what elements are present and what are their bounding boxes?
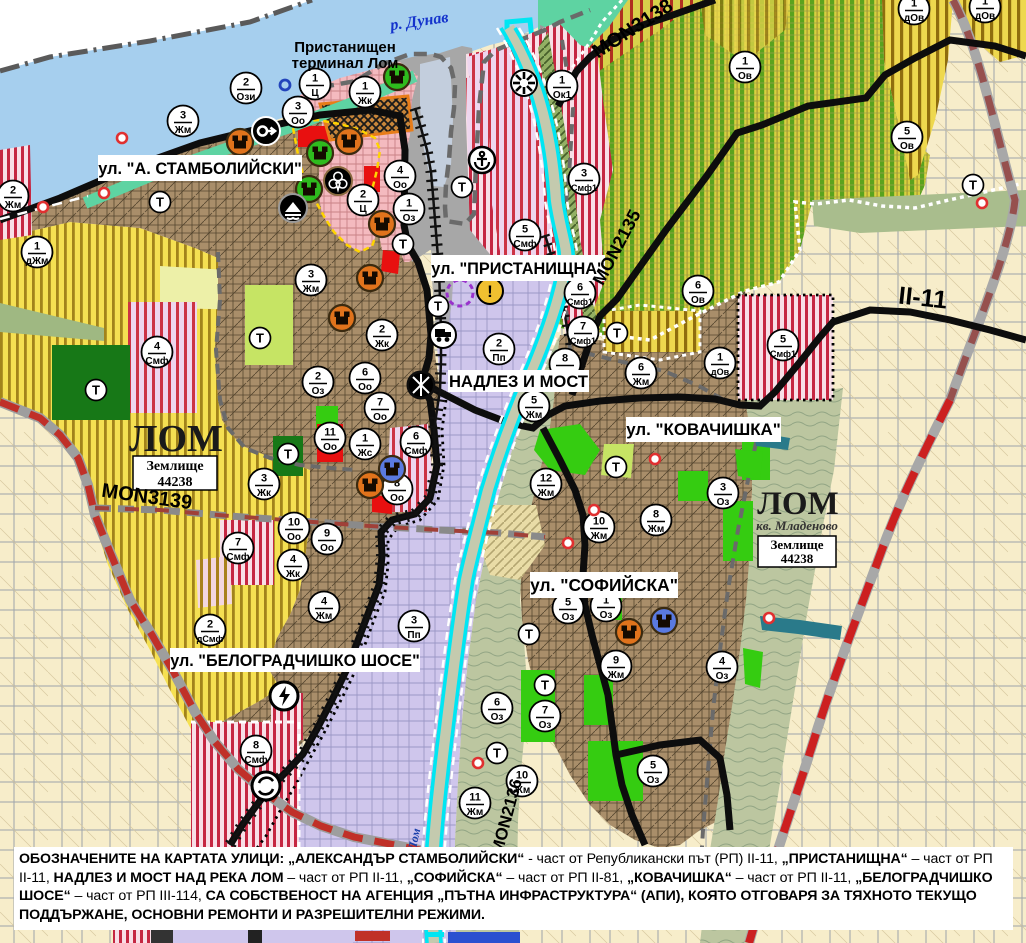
svg-text:4: 4	[154, 341, 161, 353]
svg-text:44238: 44238	[781, 551, 814, 566]
svg-text:Смф1: Смф1	[570, 336, 596, 346]
svg-text:Жс: Жс	[357, 448, 373, 459]
svg-text:2: 2	[360, 189, 366, 201]
svg-text:!: !	[487, 282, 493, 301]
svg-text:5: 5	[565, 597, 571, 609]
svg-text:1: 1	[406, 198, 412, 210]
svg-text:Землище: Землище	[770, 537, 823, 552]
svg-text:8: 8	[562, 353, 568, 365]
svg-text:Жм: Жм	[590, 531, 607, 542]
svg-text:Смф: Смф	[404, 445, 427, 457]
svg-text:Смф1: Смф1	[770, 349, 796, 359]
svg-text:Жм: Жм	[537, 488, 554, 499]
svg-text:Жк: Жк	[374, 339, 390, 350]
svg-text:8: 8	[253, 740, 259, 752]
svg-text:Оо: Оо	[320, 543, 334, 554]
svg-text:Жм: Жм	[607, 670, 624, 681]
svg-text:4: 4	[397, 165, 404, 177]
svg-text:Смф1: Смф1	[567, 297, 593, 307]
svg-text:10: 10	[593, 516, 605, 528]
svg-text:1: 1	[982, 0, 988, 8]
svg-text:5: 5	[522, 224, 528, 236]
svg-text:Т: Т	[969, 178, 977, 193]
svg-text:Пп: Пп	[492, 353, 505, 364]
svg-text:ул. "ПРИСТАНИЩНА": ул. "ПРИСТАНИЩНА"	[431, 260, 605, 278]
svg-text:2: 2	[315, 371, 321, 383]
svg-text:11: 11	[324, 427, 336, 439]
svg-text:Оо: Оо	[390, 493, 404, 504]
svg-text:Т: Т	[525, 627, 533, 642]
svg-text:5: 5	[780, 334, 786, 346]
svg-text:Т: Т	[92, 383, 100, 398]
svg-text:Смф: Смф	[513, 238, 536, 250]
svg-text:2: 2	[379, 324, 385, 336]
svg-text:Т: Т	[156, 195, 164, 210]
svg-text:Жм: Жм	[647, 524, 664, 535]
svg-text:Оо: Оо	[291, 116, 305, 127]
svg-text:Ози: Ози	[237, 92, 256, 103]
svg-text:ул. "БЕЛОГРАДЧИШКО ШОСЕ": ул. "БЕЛОГРАДЧИШКО ШОСЕ"	[170, 652, 420, 670]
svg-text:3: 3	[295, 101, 301, 113]
svg-text:5: 5	[650, 760, 656, 772]
svg-text:9: 9	[613, 655, 619, 667]
svg-text:5: 5	[904, 126, 910, 138]
svg-text:Ов: Ов	[738, 71, 752, 82]
svg-text:Оз: Оз	[647, 775, 660, 786]
svg-text:Оо: Оо	[287, 532, 301, 543]
svg-text:1: 1	[742, 56, 748, 68]
svg-text:Т: Т	[399, 237, 407, 252]
svg-text:Смф: Смф	[244, 754, 267, 766]
svg-text:Смф1: Смф1	[571, 183, 597, 193]
svg-text:6: 6	[638, 362, 644, 374]
svg-text:2: 2	[207, 619, 213, 631]
svg-text:7: 7	[580, 321, 586, 333]
svg-text:Оо: Оо	[323, 442, 337, 453]
svg-text:Т: Т	[256, 331, 264, 346]
svg-text:НАДЛЕЗ И МОСТ: НАДЛЕЗ И МОСТ	[449, 372, 588, 391]
svg-text:дОв: дОв	[904, 13, 924, 24]
svg-text:4: 4	[321, 596, 328, 608]
svg-text:Жм: Жм	[466, 807, 483, 818]
svg-text:6: 6	[494, 697, 500, 709]
svg-text:2: 2	[243, 77, 249, 89]
svg-text:12: 12	[540, 473, 552, 485]
svg-text:3: 3	[180, 110, 186, 122]
svg-text:Жм: Жм	[315, 611, 332, 622]
svg-text:3: 3	[581, 168, 587, 180]
svg-text:Т: Т	[458, 180, 466, 195]
svg-text:Оз: Оз	[717, 497, 730, 508]
svg-text:Жм: Жм	[525, 410, 542, 421]
svg-text:Т: Т	[613, 326, 621, 341]
svg-text:Жк: Жк	[357, 96, 373, 107]
svg-text:Т: Т	[434, 299, 442, 314]
svg-text:11: 11	[469, 792, 481, 804]
svg-text:3: 3	[261, 473, 267, 485]
svg-text:Т: Т	[284, 447, 292, 462]
svg-text:Жк: Жк	[256, 488, 272, 499]
svg-text:6: 6	[695, 280, 701, 292]
svg-text:Ов: Ов	[900, 141, 914, 152]
svg-text:7: 7	[542, 705, 548, 717]
svg-text:ЛОМ: ЛОМ	[129, 418, 223, 460]
svg-text:8: 8	[653, 509, 659, 521]
svg-text:Оз: Оз	[600, 610, 613, 621]
svg-text:кв. Младеново: кв. Младеново	[756, 518, 838, 533]
svg-text:дЖм: дЖм	[26, 256, 49, 267]
svg-text:6: 6	[577, 282, 583, 294]
svg-text:9: 9	[324, 528, 330, 540]
svg-text:Оз: Оз	[403, 213, 416, 224]
svg-text:II-11: II-11	[897, 282, 948, 315]
svg-text:1: 1	[717, 352, 723, 364]
svg-text:Землище: Землище	[146, 459, 203, 474]
svg-text:Пристанищен: Пристанищен	[294, 39, 396, 56]
svg-text:4: 4	[719, 656, 726, 668]
svg-text:дСмф: дСмф	[197, 634, 224, 644]
svg-text:Ов: Ов	[691, 295, 705, 306]
svg-text:ЛОМ: ЛОМ	[757, 486, 838, 522]
svg-text:1: 1	[559, 75, 565, 87]
svg-text:Оз: Оз	[312, 386, 325, 397]
svg-text:7: 7	[377, 397, 383, 409]
svg-text:1: 1	[362, 433, 368, 445]
svg-text:1: 1	[362, 81, 368, 93]
svg-text:Ц: Ц	[359, 204, 367, 215]
svg-text:1: 1	[34, 241, 40, 253]
svg-text:Оо: Оо	[358, 382, 372, 393]
svg-text:дОв: дОв	[711, 367, 730, 377]
svg-text:10: 10	[288, 517, 300, 529]
svg-text:Смф: Смф	[226, 551, 249, 563]
svg-text:ул. "СОФИЙСКА": ул. "СОФИЙСКА"	[530, 575, 678, 595]
svg-text:терминал Лом: терминал Лом	[292, 55, 399, 72]
svg-text:Т: Т	[493, 746, 501, 761]
svg-text:Оз: Оз	[716, 671, 729, 682]
svg-text:5: 5	[531, 395, 537, 407]
svg-text:Оо: Оо	[373, 412, 387, 423]
svg-text:Оо: Оо	[393, 180, 407, 191]
svg-text:Оз: Оз	[491, 712, 504, 723]
svg-text:Ок1: Ок1	[553, 90, 572, 101]
svg-text:3: 3	[411, 615, 417, 627]
svg-text:2: 2	[10, 185, 16, 197]
svg-text:Пп: Пп	[407, 630, 420, 641]
svg-text:Жм: Жм	[302, 284, 319, 295]
svg-text:3: 3	[308, 269, 314, 281]
svg-text:1: 1	[312, 73, 318, 85]
svg-text:2: 2	[496, 338, 502, 350]
svg-text:дОв: дОв	[975, 11, 995, 22]
svg-text:Т: Т	[612, 460, 620, 475]
svg-text:1: 1	[911, 0, 917, 10]
svg-text:Оз: Оз	[562, 612, 575, 623]
svg-text:Жк: Жк	[285, 569, 301, 580]
svg-text:Смф: Смф	[145, 355, 168, 367]
svg-text:ул. "А. СТАМБОЛИЙСКИ": ул. "А. СТАМБОЛИЙСКИ"	[98, 159, 302, 178]
svg-text:ул. "КОВАЧИШКА": ул. "КОВАЧИШКА"	[626, 420, 781, 439]
svg-text:6: 6	[362, 367, 368, 379]
svg-text:Жм: Жм	[632, 377, 649, 388]
svg-text:Жм: Жм	[4, 200, 21, 211]
svg-text:Ц: Ц	[311, 88, 319, 99]
svg-text:7: 7	[235, 537, 241, 549]
svg-text:6: 6	[413, 431, 419, 443]
svg-text:4: 4	[290, 554, 297, 566]
svg-text:Жм: Жм	[174, 125, 191, 136]
svg-text:3: 3	[720, 482, 726, 494]
svg-text:Оз: Оз	[539, 720, 552, 731]
svg-text:Т: Т	[541, 678, 549, 693]
